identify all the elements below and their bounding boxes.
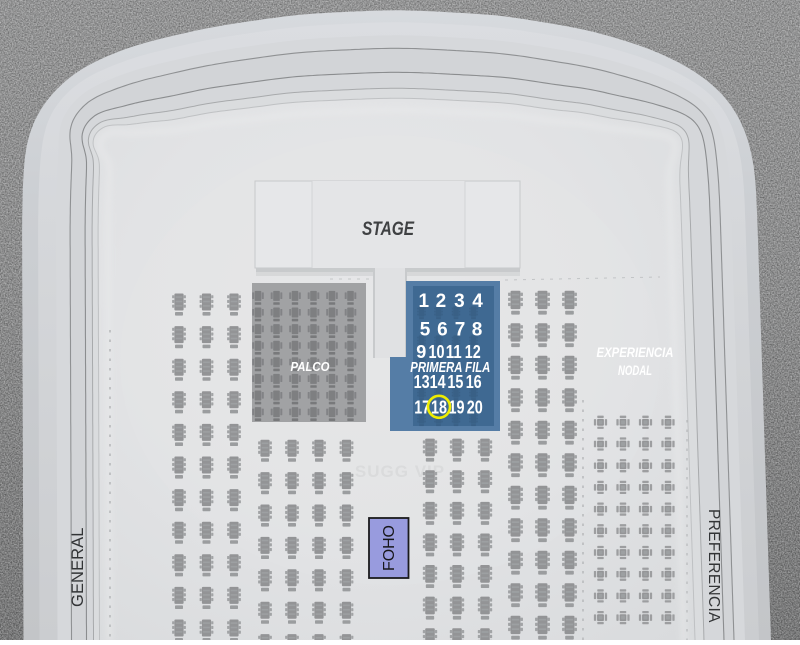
svg-text:2: 2 [436, 291, 447, 312]
svg-text:10: 10 [429, 342, 445, 362]
svg-text:5: 5 [420, 320, 431, 341]
svg-text:18: 18 [431, 397, 447, 417]
svg-text:4: 4 [472, 291, 483, 312]
svg-text:6: 6 [437, 320, 448, 341]
svg-text:9: 9 [416, 342, 426, 362]
svg-text:GENERAL: GENERAL [69, 527, 87, 607]
svg-text:PREFERENCIA: PREFERENCIA [705, 509, 722, 623]
svg-text:NODAL: NODAL [618, 363, 652, 378]
svg-text:3: 3 [454, 291, 465, 312]
svg-text:STAGE: STAGE [362, 219, 415, 240]
svg-text:11: 11 [446, 342, 462, 362]
svg-text:EXPERIENCIA: EXPERIENCIA [597, 345, 674, 360]
svg-text:12: 12 [465, 342, 481, 362]
svg-text:FOHO: FOHO [381, 525, 398, 571]
svg-text:PRIMERA FILA: PRIMERA FILA [410, 360, 490, 376]
svg-text:PALCO: PALCO [291, 360, 330, 374]
svg-text:20: 20 [467, 397, 483, 417]
svg-text:8: 8 [472, 320, 483, 341]
svg-text:7: 7 [455, 320, 466, 341]
svg-text:1: 1 [419, 291, 430, 312]
